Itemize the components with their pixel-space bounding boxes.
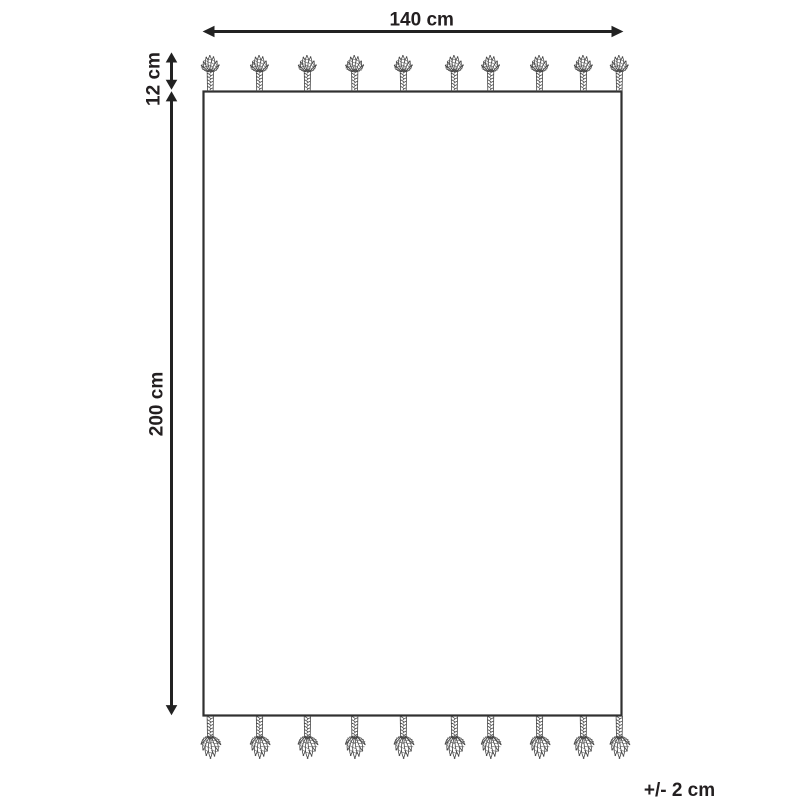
svg-text:200 cm: 200 cm — [146, 372, 167, 436]
svg-text:12 cm: 12 cm — [143, 52, 164, 106]
svg-text:+/- 2 cm: +/- 2 cm — [644, 780, 715, 800]
svg-text:140 cm: 140 cm — [389, 10, 453, 31]
